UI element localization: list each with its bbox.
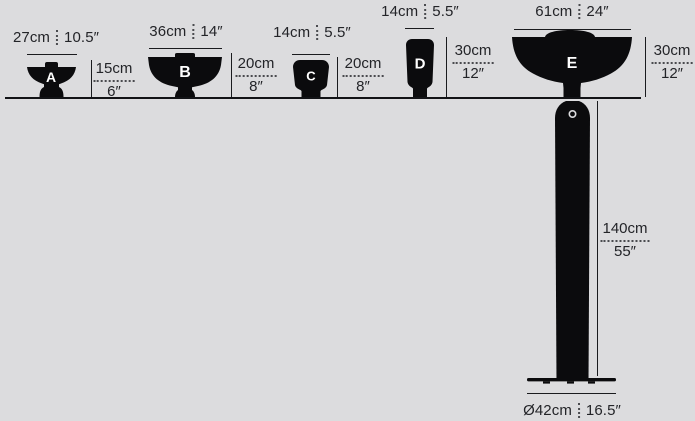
width-in-d: 5.5″ [432, 3, 459, 20]
height-cm-a: 15cm [94, 61, 135, 82]
height-cm-c: 20cm [343, 56, 384, 77]
width-cm-d: 14cm [381, 3, 418, 20]
width-cm-e: 61cm [535, 3, 572, 20]
width-label-e: 61cm 24″ [535, 3, 608, 20]
height-in-a: 6″ [94, 82, 135, 101]
height-in-c: 8″ [343, 77, 384, 96]
width-label-c: 14cm 5.5″ [273, 24, 351, 41]
height-rule-b [231, 53, 232, 97]
width-label-b: 36cm 14″ [149, 23, 222, 40]
height-label-a: 15cm 6″ [94, 61, 135, 100]
unit-separator-icon [56, 30, 58, 45]
width-cm-c: 14cm [273, 24, 310, 41]
width-cm-a: 27cm [13, 29, 50, 46]
width-in-b: 14″ [200, 23, 222, 40]
width-cm-b: 36cm [149, 23, 186, 40]
width-in-c: 5.5″ [324, 24, 351, 41]
width-rule-a [27, 54, 77, 55]
width-in-e: 24″ [586, 3, 608, 20]
unit-separator-icon [578, 403, 580, 418]
height-rule-a [91, 60, 92, 97]
lamp-e-base-icon [527, 377, 616, 387]
width-in-a: 10.5″ [64, 29, 99, 46]
height-cm-e: 30cm [652, 43, 693, 64]
lamp-b-letter: B [179, 64, 191, 82]
height-rule-e [645, 37, 646, 97]
unit-separator-icon [424, 4, 426, 19]
width-label-d: 14cm 5.5″ [381, 3, 459, 20]
pole-height-in: 55″ [600, 242, 649, 261]
unit-separator-icon [316, 25, 318, 40]
height-label-e: 30cm 12″ [652, 43, 693, 82]
height-cm-d: 30cm [453, 43, 494, 64]
lamp-e-base-silhouette [527, 377, 616, 387]
lamp-e-pole-silhouette [555, 101, 590, 381]
lamp-a-letter: A [46, 69, 56, 85]
base-diameter-in: 16.5″ [586, 402, 621, 419]
lamp-d-letter: D [415, 56, 426, 73]
height-cm-b: 20cm [236, 56, 277, 77]
dimension-diagram: 27cm 10.5″ 36cm 14″ 14cm 5.5″ 14cm 5.5″ … [0, 0, 695, 421]
base-diameter-cm: Ø42cm [523, 402, 572, 419]
pole-height-label: 140cm 55″ [600, 221, 649, 260]
lamp-c-letter: C [306, 69, 315, 84]
height-in-b: 8″ [236, 77, 277, 96]
unit-separator-icon [192, 24, 194, 39]
unit-separator-icon [578, 4, 580, 19]
width-rule-b [149, 48, 222, 49]
width-rule-d [405, 28, 434, 29]
height-rule-d [446, 37, 447, 97]
width-rule-c [292, 54, 330, 55]
height-label-d: 30cm 12″ [453, 43, 494, 82]
height-in-d: 12″ [453, 64, 494, 83]
lamp-e-pole-icon [555, 101, 590, 381]
height-in-e: 12″ [652, 64, 693, 83]
base-diameter-label: Ø42cm 16.5″ [523, 402, 621, 419]
pole-height-cm: 140cm [600, 221, 649, 242]
width-label-a: 27cm 10.5″ [13, 29, 99, 46]
lamp-e-letter: E [567, 55, 578, 73]
height-label-c: 20cm 8″ [343, 56, 384, 95]
base-diameter-rule [527, 393, 616, 394]
height-rule-c [337, 57, 338, 97]
pole-height-rule [597, 101, 598, 376]
height-label-b: 20cm 8″ [236, 56, 277, 95]
